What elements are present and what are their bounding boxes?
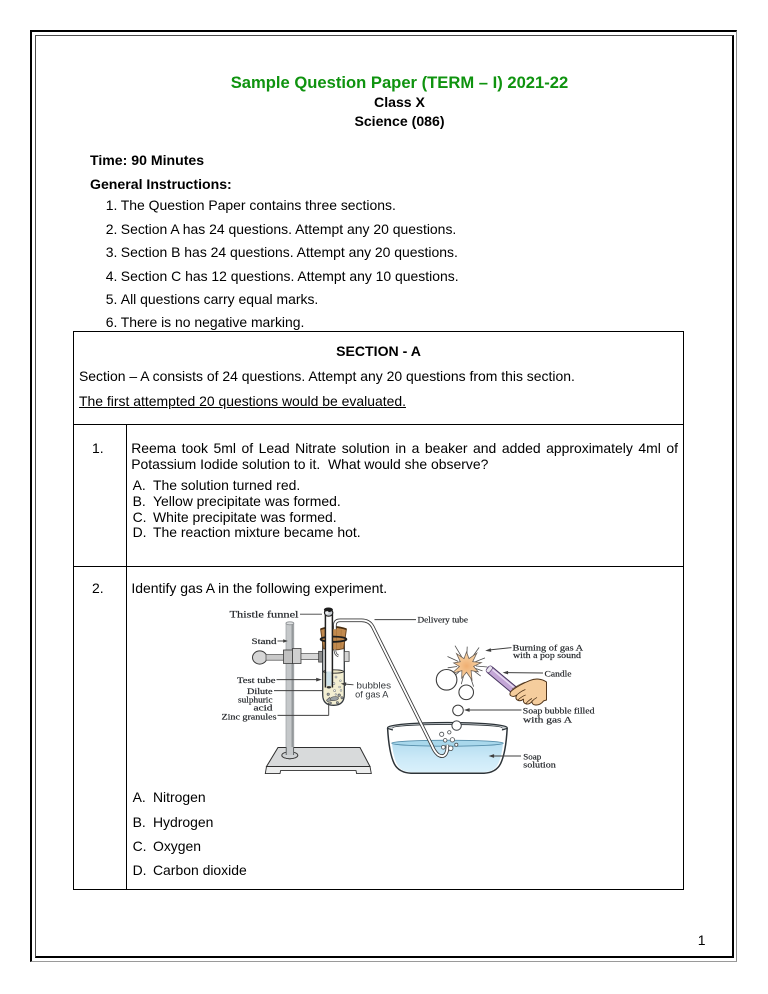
svg-text:Soap bubble filled: Soap bubble filled bbox=[523, 707, 596, 716]
svg-text:Thistle funnel: Thistle funnel bbox=[230, 609, 300, 620]
svg-text:with gas A: with gas A bbox=[523, 715, 572, 724]
svg-text:acid: acid bbox=[254, 704, 274, 713]
svg-text:Stand: Stand bbox=[252, 637, 278, 646]
svg-text:solution: solution bbox=[523, 760, 557, 769]
svg-text:Delivery tube: Delivery tube bbox=[418, 616, 469, 625]
svg-text:Zinc granules: Zinc granules bbox=[222, 713, 277, 722]
svg-text:of gas A: of gas A bbox=[355, 690, 388, 700]
svg-text:Test tube: Test tube bbox=[237, 676, 276, 685]
svg-text:Candle: Candle bbox=[545, 669, 572, 678]
svg-text:with a pop sound: with a pop sound bbox=[513, 651, 582, 660]
